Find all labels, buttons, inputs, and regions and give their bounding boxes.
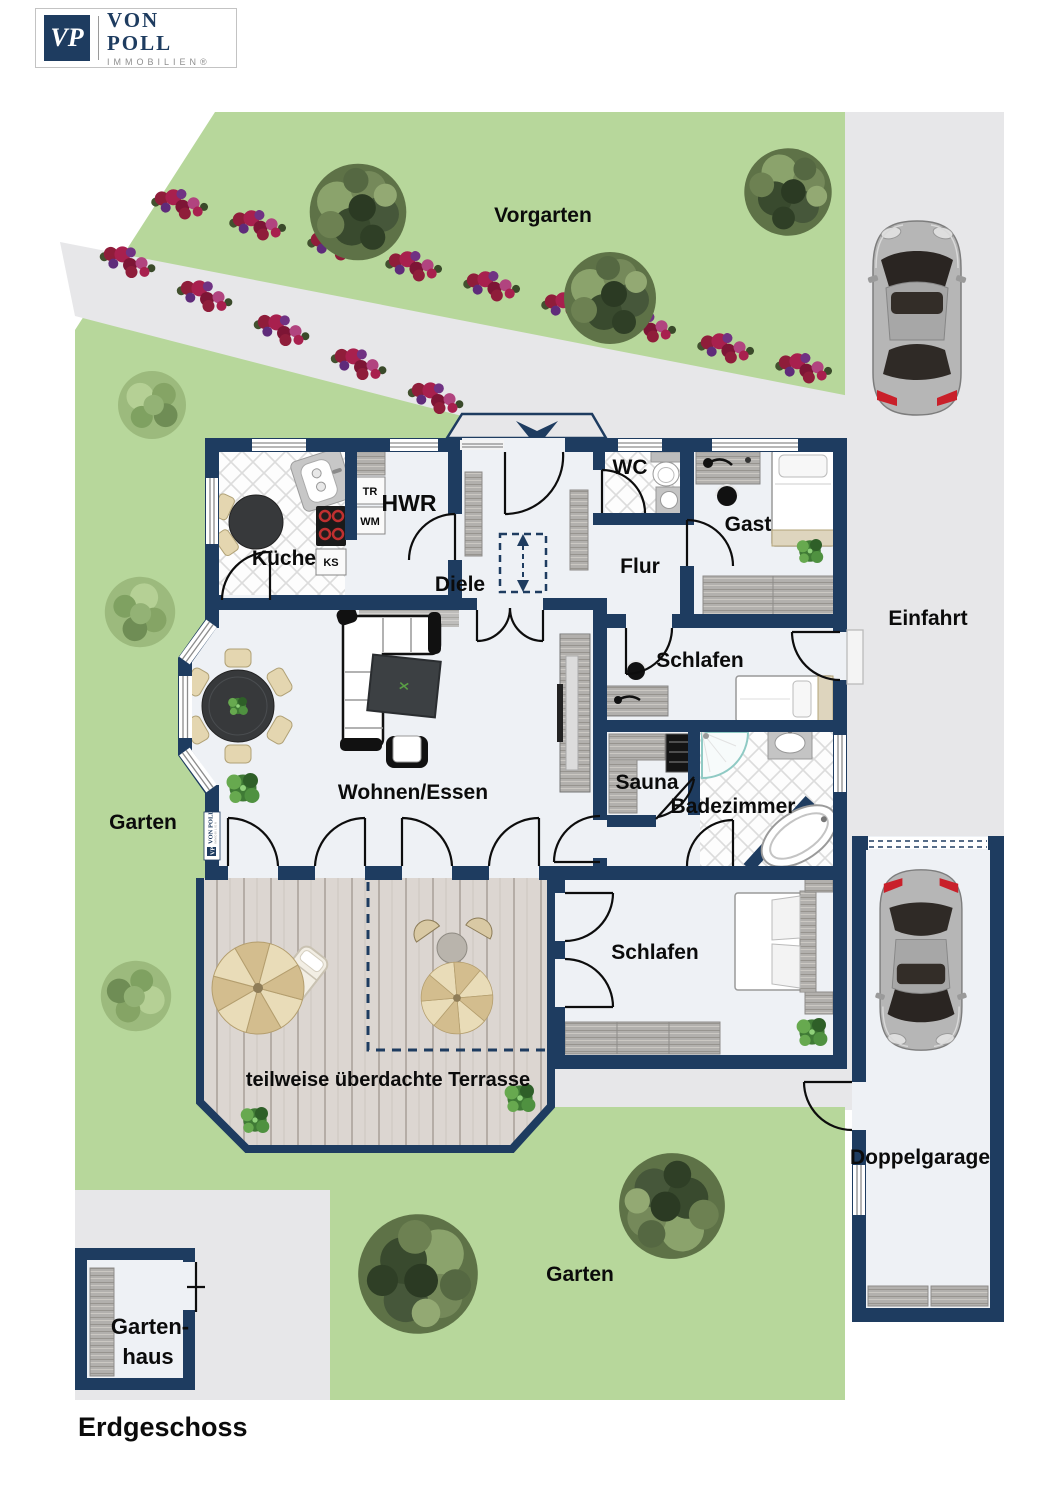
terrace-plant [241,1107,270,1133]
label-wc: WC [613,456,648,479]
label-garten-bottom: Garten [546,1263,614,1286]
dining-chair [225,745,251,763]
label-schlafen-oben: Schlafen [656,649,744,672]
label-washer: WM [360,516,380,528]
patio-table [437,933,467,963]
schlafen-unten-wardrobe [565,1022,720,1054]
hwr-cabinet [356,452,385,475]
table-centerpiece [228,697,248,715]
car-garage [875,870,967,1050]
gast-desk [696,452,760,484]
armchair [386,736,428,768]
label-wohnen-essen: Wohnen/Essen [338,781,488,804]
label-sauna: Sauna [615,771,678,794]
brand-watermark: VP VON POLL IMMOBILIEN [204,810,220,860]
label-kueche: Küche [252,547,316,570]
window-wc-north [618,439,662,451]
window-garage-west [853,1165,865,1215]
label-vorgarten: Vorgarten [494,204,592,227]
label-gartenhaus-line2: haus [122,1344,173,1369]
schlafen-oben-desk [606,686,668,716]
window-kueche-west [206,478,218,544]
gast-plant [797,539,823,563]
label-einfahrt: Einfahrt [888,607,967,630]
label-doppelgarage: Doppelgarage [850,1146,990,1169]
label-dryer: TR [363,486,378,498]
label-fridge: KS [323,557,338,569]
terrace [200,878,551,1149]
schlafen-oben-bed [736,676,833,722]
window-hwr-north [390,439,438,451]
side-door-step [847,630,863,684]
label-hwr: HWR [382,490,437,516]
window-gast-north [712,439,798,451]
living-plant [227,773,260,803]
label-gast: Gast [725,513,772,536]
label-gartenhaus-line1: Garten- [111,1314,189,1339]
hall-cabinet [570,490,588,570]
floorplan-page: VP VON POLL IMMOBILIEN® [0,0,1060,1500]
wc-sink [656,487,683,514]
rug [367,655,440,718]
watermark-subtitle: IMMOBILIEN [214,822,218,844]
label-terrasse: teilweise überdachte Terrasse [246,1069,530,1091]
car-einfahrt [867,221,966,415]
kitchen-table [229,495,283,549]
window-bad-east [834,735,846,792]
label-diele: Diele [435,573,485,596]
dining-chair [225,649,251,667]
floorplan-drawing: VP VON POLL IMMOBILIEN Vorgarten Garten … [0,0,1060,1500]
label-schlafen-unten: Schlafen [611,941,699,964]
watermark-monogram: VP [211,847,217,855]
bay-window-segment [179,676,192,738]
hall-cabinet [465,472,482,556]
label-garten-left: Garten [109,811,177,834]
plan-title: Erdgeschoss [78,1412,248,1442]
gast-bed [772,450,834,546]
entry-sidelight [460,440,504,450]
garage-shelf [868,1286,988,1306]
schlafen-unten-plant [797,1018,828,1046]
label-flur: Flur [620,555,660,578]
garage-door [868,837,988,849]
tv-sideboard [557,634,590,792]
window-kueche-north [252,439,306,451]
label-badezimmer: Badezimmer [671,795,796,818]
